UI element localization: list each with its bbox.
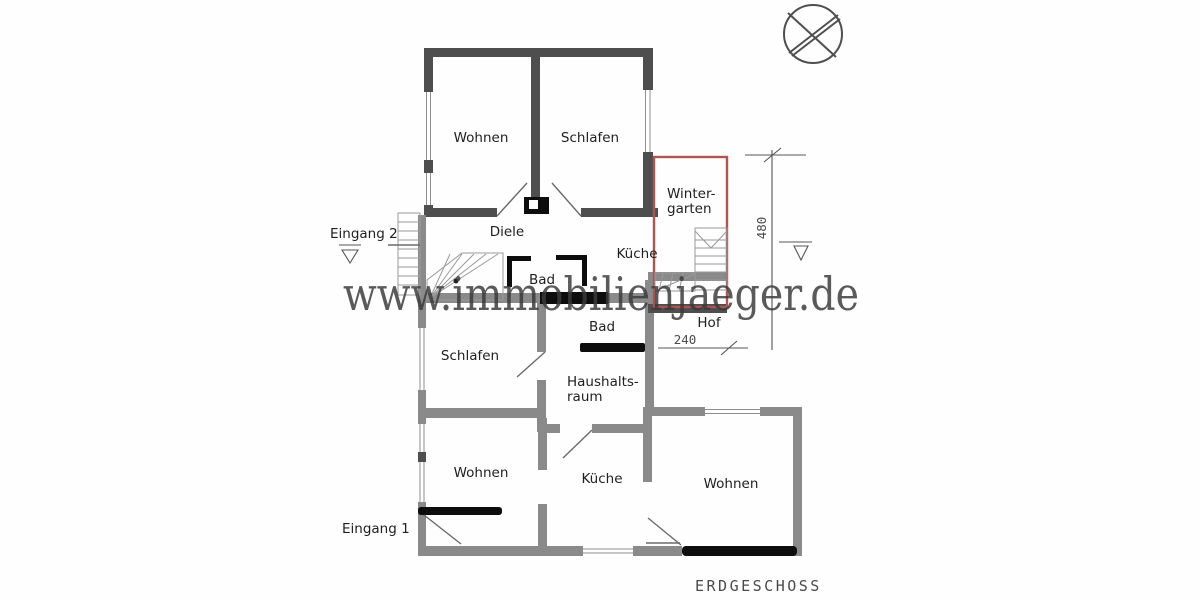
room-label-haushaltsraum-line2: raum (567, 389, 603, 405)
room-label-wohnen-top: Wohnen (454, 130, 509, 146)
entrance-label-eingang-1: Eingang 1 (342, 521, 410, 537)
room-label-haushaltsraum-line1: Haushalts- (567, 374, 639, 390)
floor-plan-drawing: Wohnen Schlafen Winter- garten Eingang 2… (0, 0, 1200, 600)
entrance-label-eingang-2: Eingang 2 (330, 226, 398, 242)
room-label-kueche-lower: Küche (581, 471, 622, 487)
dimension-label-480: 480 (754, 217, 769, 240)
compass-icon (784, 5, 842, 63)
dimension-lines (658, 148, 812, 355)
room-label-schlafen-top: Schlafen (561, 130, 619, 146)
door-swings (424, 352, 681, 545)
room-label-wintergarten-line1: Winter- (667, 186, 716, 202)
watermark-text: www.immobilienjaeger.de (343, 267, 859, 321)
dimension-label-240: 240 (674, 332, 697, 347)
scanned-floor-plan-page: Wohnen Schlafen Winter- garten Eingang 2… (0, 0, 1200, 600)
room-label-schlafen-lower: Schlafen (441, 348, 499, 364)
room-label-bad-lower: Bad (589, 319, 615, 335)
room-label-diele: Diele (490, 224, 525, 240)
room-label-kueche-upper: Küche (616, 246, 657, 262)
plan-title: ERDGESCHOSS (695, 577, 822, 595)
entrance2-marker (339, 245, 361, 263)
room-label-wohnen-bottom-left: Wohnen (454, 465, 509, 481)
room-label-wintergarten-line2: garten (667, 201, 712, 217)
room-label-wohnen-bottom-right: Wohnen (704, 476, 759, 492)
